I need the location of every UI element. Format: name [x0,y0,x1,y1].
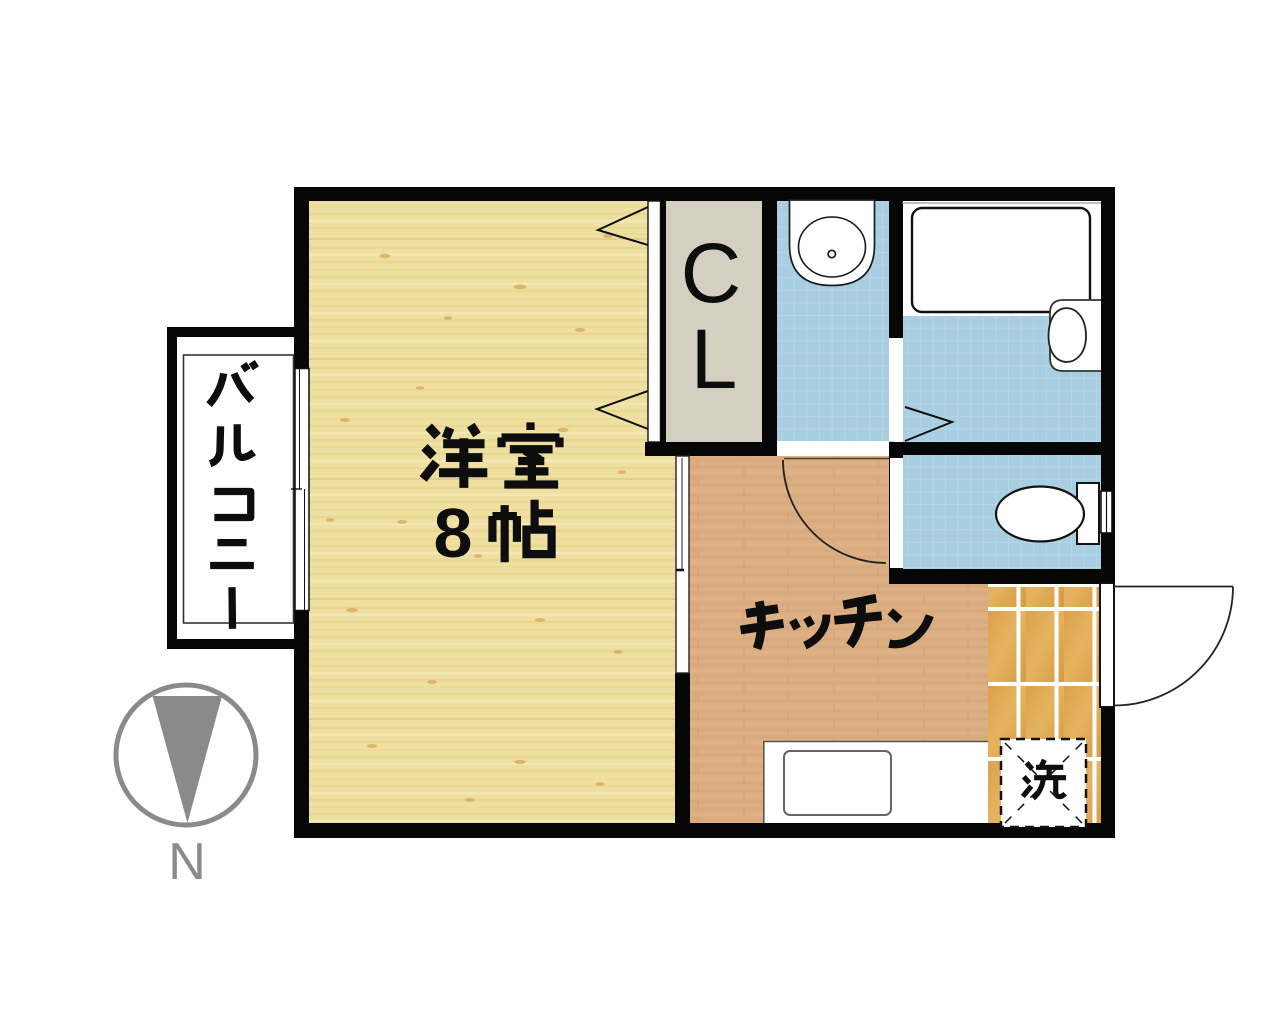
svg-text:C: C [681,226,742,320]
svg-text:N: N [168,833,206,891]
svg-text:8: 8 [434,494,473,572]
svg-text:L: L [691,312,738,406]
